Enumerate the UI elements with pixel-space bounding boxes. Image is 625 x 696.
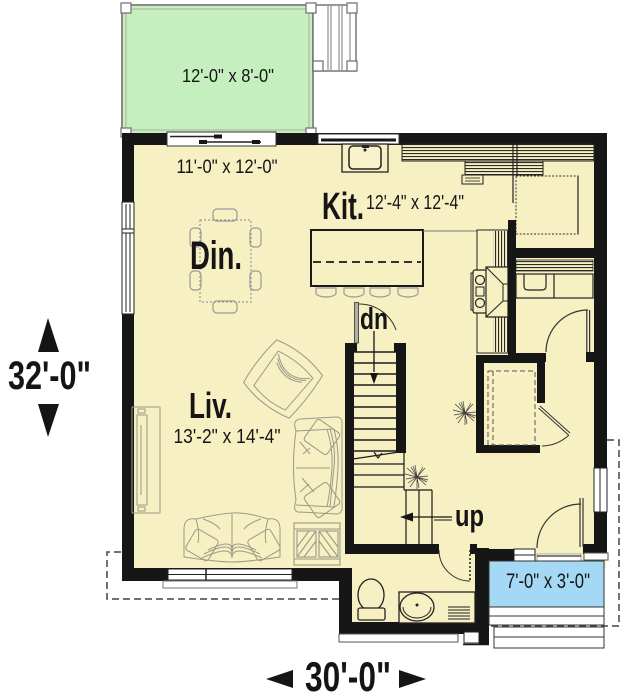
svg-text:11'-0" x 12'-0": 11'-0" x 12'-0" <box>177 157 278 178</box>
svg-text:7'-0" x 3'-0": 7'-0" x 3'-0" <box>506 570 590 593</box>
svg-text:12'-0" x 8'-0": 12'-0" x 8'-0" <box>182 65 274 86</box>
svg-text:12'-4" x 12'-4": 12'-4" x 12'-4" <box>366 192 464 214</box>
svg-text:30'-0": 30'-0" <box>305 653 391 696</box>
svg-text:Din.: Din. <box>190 234 242 278</box>
svg-text:Liv.: Liv. <box>189 385 232 426</box>
svg-text:Kit.: Kit. <box>322 186 364 228</box>
svg-text:32'-0": 32'-0" <box>8 354 91 398</box>
svg-text:13'-2" x 14'-4": 13'-2" x 14'-4" <box>174 426 281 448</box>
svg-text:up: up <box>455 498 484 533</box>
svg-text:dn: dn <box>360 301 388 336</box>
